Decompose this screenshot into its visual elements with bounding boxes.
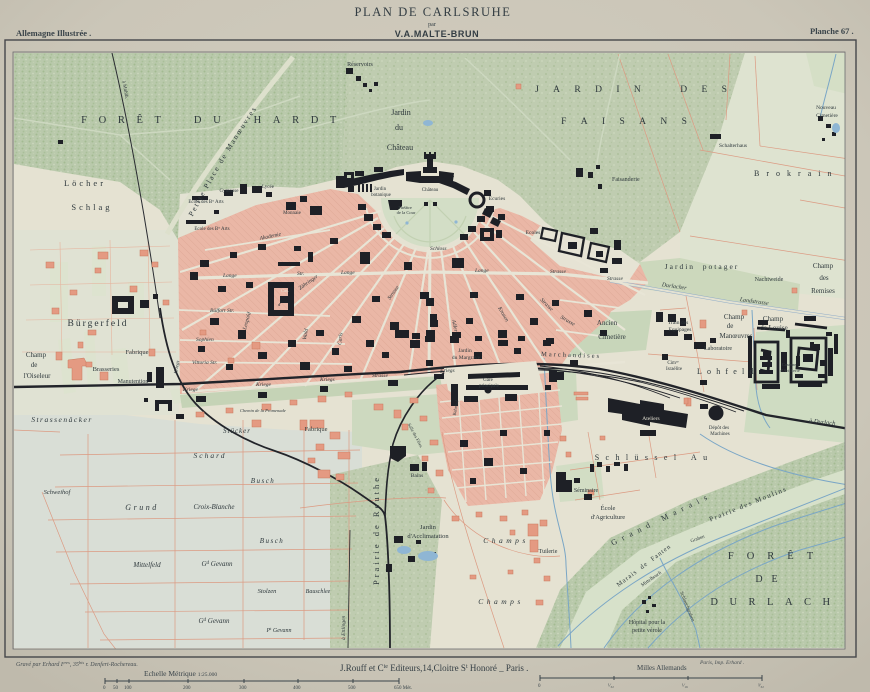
svg-text:Vittoria Str.: Vittoria Str. <box>192 360 217 366</box>
svg-text:Jardin: Jardin <box>391 108 411 117</box>
svg-text:50: 50 <box>113 686 119 691</box>
svg-text:J.Rouff et Cie Editeurs,14,Clo: J.Rouff et Cie Editeurs,14,Cloitre St Ho… <box>340 663 528 673</box>
svg-text:Champ: Champ <box>26 351 47 359</box>
svg-text:Château: Château <box>387 143 413 152</box>
svg-text:Remises: Remises <box>811 287 835 295</box>
svg-text:Jardin: Jardin <box>374 187 387 192</box>
svg-text:Monnaie: Monnaie <box>283 211 302 216</box>
svg-text:Champ: Champ <box>813 262 834 270</box>
svg-text:200: 200 <box>183 686 191 691</box>
svg-text:Grund: Grund <box>125 503 158 512</box>
svg-text:100: 100 <box>124 686 132 691</box>
svg-text:Busch: Busch <box>260 537 285 545</box>
svg-text:Bülfart Str.: Bülfart Str. <box>210 307 234 314</box>
svg-text:Israélite: Israélite <box>666 367 683 372</box>
svg-text:Manutention: Manutention <box>118 379 149 385</box>
svg-text:Jardin: Jardin <box>458 348 472 354</box>
svg-text:S c h l ü s s e l A u: S c h l ü s s e l A u <box>595 453 710 462</box>
svg-text:Stücker: Stücker <box>223 427 251 435</box>
svg-text:Séminaire: Séminaire <box>574 488 599 494</box>
svg-text:¹⁄₃₂: ¹⁄₃₂ <box>608 683 614 689</box>
svg-text:Ecole des Bx Arts: Ecole des Bx Arts <box>194 226 229 233</box>
svg-text:Fabrique: Fabrique <box>304 426 327 433</box>
svg-text:Schweihof: Schweihof <box>44 489 72 496</box>
svg-text:Ecuries: Ecuries <box>489 196 506 202</box>
svg-text:Nachtweide: Nachtweide <box>755 277 784 283</box>
svg-text:Cas.: Cas. <box>281 288 289 293</box>
svg-text:Bains: Bains <box>411 473 424 479</box>
svg-text:de la Cour: de la Cour <box>397 210 416 215</box>
svg-text:³⁄₃₂: ³⁄₃₂ <box>758 683 764 689</box>
svg-text:Machines: Machines <box>710 432 729 437</box>
svg-text:Croix-Blanche: Croix-Blanche <box>194 503 235 511</box>
svg-text:B r o k r a i n: B r o k r a i n <box>754 169 834 178</box>
svg-text:Prairie de Reuthe: Prairie de Reuthe <box>371 475 381 585</box>
svg-text:Caserne: Caserne <box>782 362 797 367</box>
svg-text:Train des: Train des <box>668 320 688 326</box>
svg-text:J A R D I N D E S: J A R D I N D E S <box>535 85 733 95</box>
svg-text:Allemagne Illustrée .: Allemagne Illustrée . <box>16 28 91 38</box>
svg-text:Faisanderie: Faisanderie <box>612 177 640 183</box>
svg-text:500: 500 <box>348 686 356 691</box>
svg-text:400: 400 <box>293 686 301 691</box>
svg-text:Gd Gevann: Gd Gevann <box>201 560 233 568</box>
svg-text:Brasseries: Brasseries <box>93 366 120 373</box>
svg-text:Ecoles: Ecoles <box>526 230 541 236</box>
svg-text:Gare: Gare <box>483 378 493 383</box>
svg-text:¹⁄₁₆: ¹⁄₁₆ <box>682 683 688 689</box>
svg-text:Ateliers: Ateliers <box>642 416 659 422</box>
svg-text:Schlag: Schlag <box>71 202 112 212</box>
svg-text:Bauschlee: Bauschlee <box>306 589 331 595</box>
svg-text:F A I S A N S: F A I S A N S <box>561 117 693 127</box>
svg-text:Lange: Lange <box>222 273 237 279</box>
svg-text:Laboratoire: Laboratoire <box>704 346 732 352</box>
svg-text:Tuilerie: Tuilerie <box>539 549 558 555</box>
svg-text:principale: principale <box>479 384 500 389</box>
svg-text:Cimetière: Cimetière <box>816 113 838 119</box>
svg-text:Lycée: Lycée <box>262 185 275 190</box>
svg-text:L o h f e l d: L o h f e l d <box>697 367 755 376</box>
svg-text:d': d' <box>278 302 281 307</box>
svg-text:Manœuvres: Manœuvres <box>719 332 752 340</box>
svg-text:Fabrique: Fabrique <box>125 349 148 356</box>
svg-text:Sophien: Sophien <box>196 337 214 343</box>
svg-text:Strasse: Strasse <box>372 373 388 379</box>
svg-text:Str.: Str. <box>297 271 304 277</box>
svg-text:Chemin de la Promenade: Chemin de la Promenade <box>240 408 286 413</box>
svg-text:Schard: Schard <box>194 451 227 460</box>
svg-text:Gymnase: Gymnase <box>220 189 240 194</box>
svg-text:Schloss: Schloss <box>430 246 447 252</box>
svg-text:F O R Ê T D U H A R D T: F O R Ê T D U H A R D T <box>81 114 341 126</box>
svg-text:l'Oiseleur: l'Oiseleur <box>24 372 52 380</box>
svg-text:Jardin: Jardin <box>420 524 437 531</box>
svg-text:de: de <box>31 361 38 369</box>
svg-text:Gravé par Erhard Fres, 35bis r: Gravé par Erhard Fres, 35bis r. Denfert-… <box>16 660 138 668</box>
svg-text:Hôpital pour la: Hôpital pour la <box>629 620 666 626</box>
svg-text:Mittelfeld: Mittelfeld <box>132 561 161 569</box>
svg-text:Kriege: Kriege <box>182 387 199 393</box>
svg-text:Busch: Busch <box>251 477 276 485</box>
svg-text:Jardin potager: Jardin potager <box>665 262 740 271</box>
svg-text:FORÊT: FORÊT <box>728 550 826 562</box>
svg-text:Milles Allemands: Milles Allemands <box>637 664 687 672</box>
svg-text:Champs: Champs <box>478 597 524 606</box>
svg-text:d'Agriculture: d'Agriculture <box>591 514 625 521</box>
svg-text:Equipages: Equipages <box>669 327 692 333</box>
svg-text:Paris, Imp. Erhard .: Paris, Imp. Erhard . <box>699 660 744 666</box>
svg-text:PLAN DE CARLSRUHE: PLAN DE CARLSRUHE <box>354 5 511 19</box>
svg-text:Cimetière: Cimetière <box>598 333 626 341</box>
svg-text:Réservoirs: Réservoirs <box>347 62 373 68</box>
svg-text:DURLACH: DURLACH <box>710 597 841 608</box>
svg-text:Ecole des Bx Arts: Ecole des Bx Arts <box>188 199 223 206</box>
svg-text:par: par <box>428 22 436 28</box>
svg-text:botanique: botanique <box>371 193 391 198</box>
svg-text:Lange: Lange <box>340 270 355 276</box>
svg-text:V.A.MALTE-BRUN: V.A.MALTE-BRUN <box>395 29 479 39</box>
svg-text:Champ: Champ <box>724 313 745 321</box>
svg-text:Schalterhaus: Schalterhaus <box>719 143 747 149</box>
svg-text:petite vérole: petite vérole <box>632 628 662 634</box>
svg-text:Bürgerfeld: Bürgerfeld <box>68 318 129 329</box>
svg-text:Champ: Champ <box>763 315 784 323</box>
svg-text:Gd Gevann: Gd Gevann <box>198 617 230 625</box>
svg-text:DE: DE <box>755 574 786 585</box>
svg-text:Lange: Lange <box>474 268 489 274</box>
svg-text:du: du <box>395 123 403 132</box>
svg-text:Strassenäcker: Strassenäcker <box>31 415 93 424</box>
svg-text:Pt Gevann: Pt Gevann <box>265 626 291 634</box>
svg-text:de: de <box>727 322 734 330</box>
svg-text:Strasse: Strasse <box>550 269 566 275</box>
svg-text:d'Acclimatation: d'Acclimatation <box>407 533 449 540</box>
svg-text:d'Artillerie: d'Artillerie <box>780 368 800 373</box>
svg-text:Château: Château <box>422 188 439 193</box>
svg-text:Strasse: Strasse <box>607 276 623 282</box>
svg-text:650 Mèt.: 650 Mèt. <box>394 686 412 691</box>
svg-text:Kriege: Kriege <box>255 382 272 388</box>
svg-text:des: des <box>819 274 829 282</box>
svg-text:de Louise: de Louise <box>760 324 787 332</box>
svg-text:Ancien: Ancien <box>597 319 618 327</box>
svg-text:300: 300 <box>239 686 247 691</box>
svg-text:du Margrave: du Margrave <box>452 355 481 361</box>
svg-text:Löcher: Löcher <box>64 178 106 188</box>
svg-text:Champs: Champs <box>483 536 529 545</box>
svg-text:Kriegs: Kriegs <box>319 377 335 383</box>
svg-text:Planche 67 .: Planche 67 . <box>810 26 854 36</box>
svg-text:Kriegs: Kriegs <box>439 368 455 374</box>
svg-text:Dépôt des: Dépôt des <box>709 426 729 431</box>
svg-text:à Ettlingen: à Ettlingen <box>341 615 347 640</box>
svg-text:Nouveau: Nouveau <box>816 105 836 111</box>
svg-text:École: École <box>601 504 616 512</box>
svg-text:Stolzen: Stolzen <box>258 588 277 595</box>
